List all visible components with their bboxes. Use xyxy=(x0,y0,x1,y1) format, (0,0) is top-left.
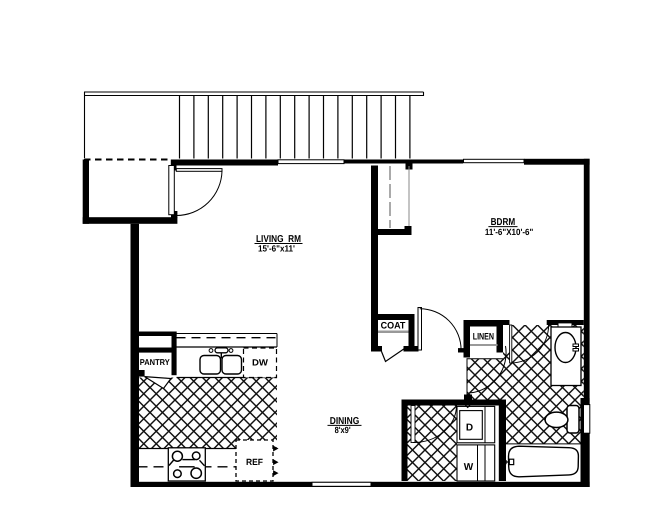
svg-text:LINEN: LINEN xyxy=(473,332,494,343)
svg-text:PANTRY: PANTRY xyxy=(140,357,170,367)
svg-text:D: D xyxy=(466,423,473,434)
svg-text:DW: DW xyxy=(252,358,269,368)
svg-text:11'-6"X10'-6": 11'-6"X10'-6" xyxy=(485,227,534,237)
svg-text:W: W xyxy=(464,462,474,473)
svg-text:15'-6"x11': 15'-6"x11' xyxy=(258,243,295,253)
svg-text:8'x9': 8'x9' xyxy=(335,425,351,435)
svg-text:COAT: COAT xyxy=(381,320,406,331)
svg-text:REF: REF xyxy=(246,457,263,467)
